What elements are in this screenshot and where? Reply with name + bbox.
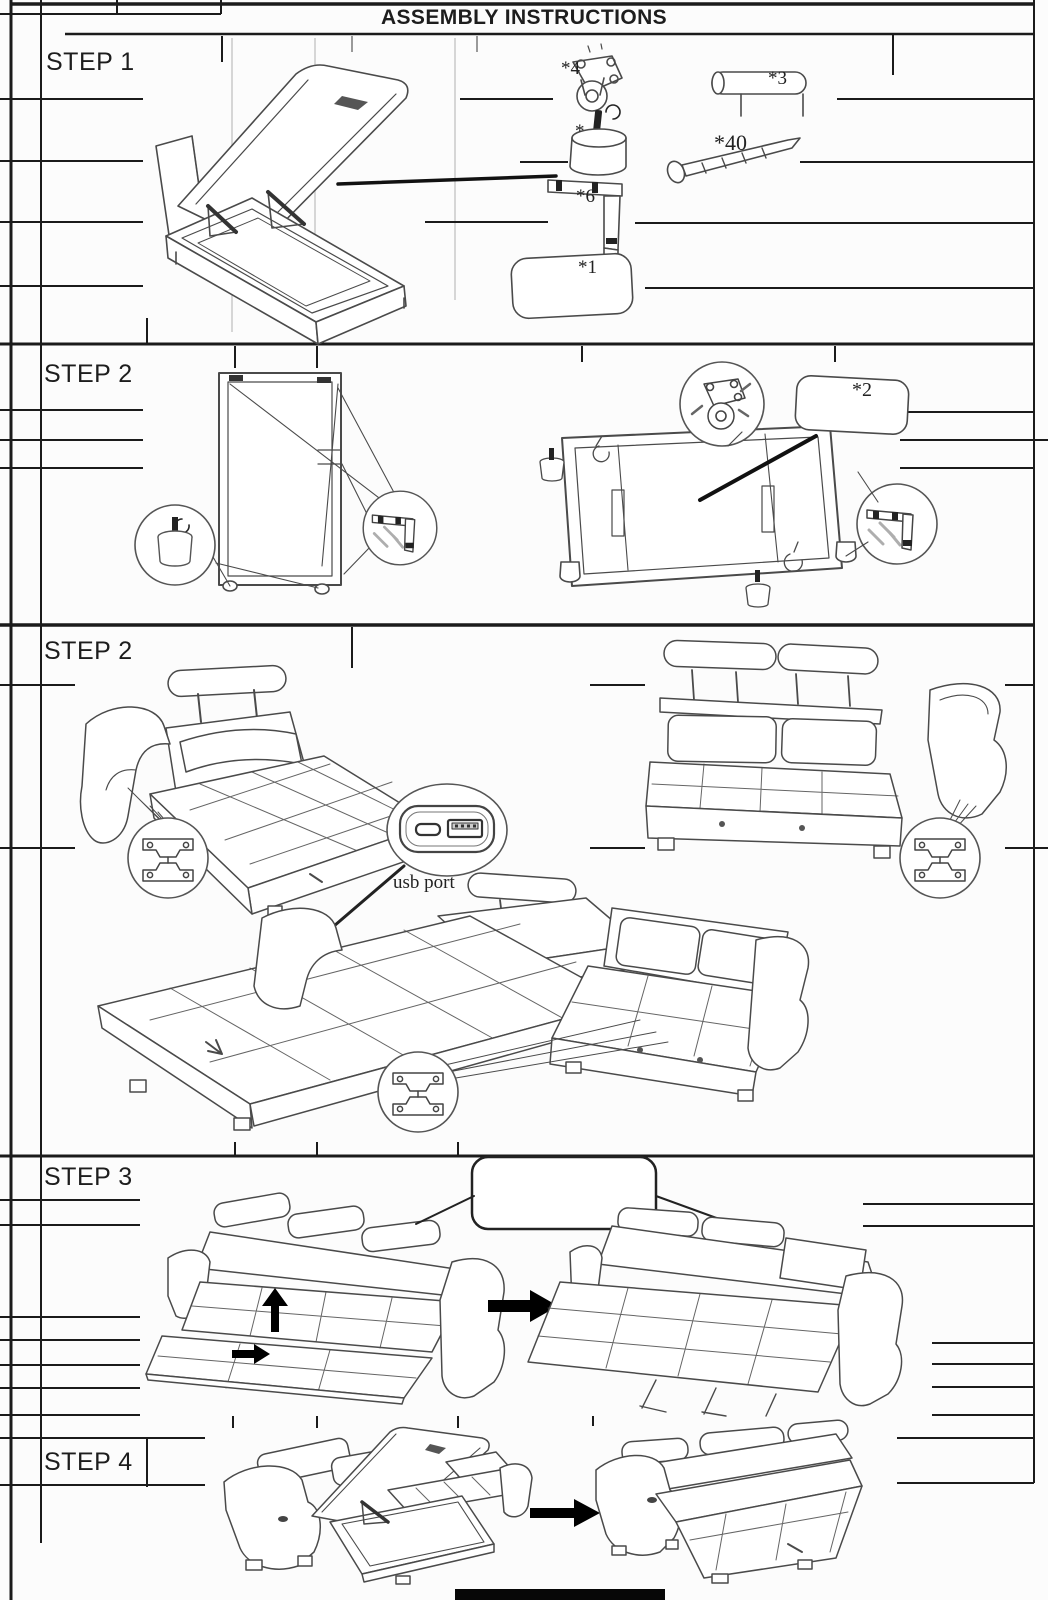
caster-detail-circle — [680, 362, 764, 446]
sofa-bed-fully-open-icon — [528, 1207, 902, 1416]
armrest-attached — [748, 937, 809, 1070]
assembly-instruction-sheet: ASSEMBLY INSTRUCTIONS STEP 1 STEP 2 STEP… — [0, 0, 1048, 1600]
part-label-pillow-1: *1 — [578, 257, 597, 279]
page-title: ASSEMBLY INSTRUCTIONS — [0, 6, 1048, 30]
step-2b-label: STEP 2 — [44, 637, 133, 666]
part-label-round-leg: * — [575, 121, 585, 143]
upright-bed-frame-icon — [213, 373, 400, 594]
clip-bracket-detail-circle — [900, 818, 980, 898]
sectional-storage-open-icon — [224, 1428, 532, 1585]
part-label-caster: *4 — [561, 58, 580, 80]
usb-port-caption: usb port — [393, 872, 455, 894]
micro-usb-icon — [416, 824, 440, 835]
metal-leg-rail-icon — [712, 72, 806, 116]
usb-port-detail-circle — [387, 784, 507, 876]
step3-illustrations — [146, 1157, 902, 1416]
bracket-detail-circle — [857, 484, 937, 564]
step4-illustrations — [224, 1419, 862, 1584]
part-label-pillow-2: *2 — [852, 379, 872, 402]
bracket-detail-circle — [363, 491, 437, 565]
step-1-label: STEP 1 — [46, 48, 135, 77]
step-4-label: STEP 4 — [44, 1448, 133, 1477]
clip-bracket-detail-circle — [128, 818, 208, 898]
part-label-bracket: *6 — [576, 186, 595, 208]
step-2a-label: STEP 2 — [44, 360, 133, 389]
step1-illustrations — [156, 44, 806, 344]
leg-detail-circle — [135, 505, 215, 585]
flat-bed-frame-icon — [540, 426, 856, 607]
pillow-1-icon — [511, 253, 634, 319]
part-label-screws: *40 — [714, 130, 747, 156]
footer-black-bar — [455, 1589, 665, 1600]
clip-bracket-detail-circle — [378, 1052, 458, 1132]
sectional-bed-half-open-icon — [146, 1192, 504, 1404]
caster-wheel-icon — [573, 44, 622, 111]
chaise-assembled-icon — [98, 872, 640, 1130]
right-arrow — [530, 1499, 600, 1527]
instruction-sheet-artwork — [0, 0, 1048, 1600]
open-storage-chaise-icon — [156, 65, 408, 344]
armrest-right-icon — [928, 684, 1006, 828]
loveseat-with-headrests-icon — [646, 640, 902, 858]
sectional-assembled-icon — [596, 1419, 862, 1583]
step-3-label: STEP 3 — [44, 1163, 133, 1192]
step2a-illustrations — [135, 362, 937, 607]
pointer-line — [338, 176, 556, 184]
step2b-illustrations — [81, 640, 1007, 1132]
part-label-leg-rail: *3 — [768, 68, 787, 90]
